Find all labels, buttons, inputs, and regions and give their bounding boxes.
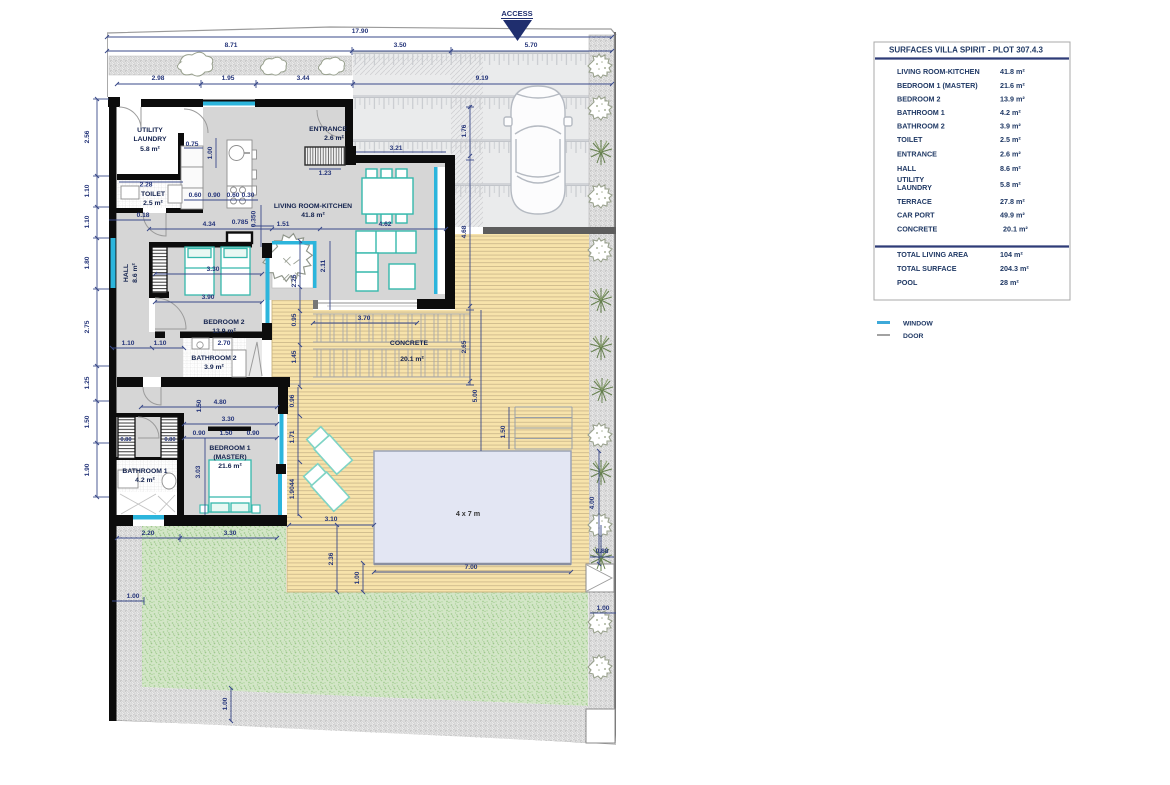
- svg-text:3.21: 3.21: [390, 145, 403, 152]
- svg-text:1.9044: 1.9044: [289, 479, 296, 500]
- svg-text:3.03: 3.03: [195, 465, 202, 478]
- svg-text:0.18: 0.18: [137, 212, 150, 219]
- svg-text:49.9 m²: 49.9 m²: [1000, 211, 1025, 220]
- svg-text:1.80: 1.80: [84, 256, 91, 269]
- svg-text:3.30: 3.30: [224, 530, 237, 537]
- svg-text:1.25: 1.25: [84, 376, 91, 389]
- svg-text:CAR PORT: CAR PORT: [897, 211, 935, 220]
- svg-text:1.00: 1.00: [354, 571, 361, 584]
- svg-text:3.30: 3.30: [207, 266, 220, 273]
- svg-text:1.00: 1.00: [597, 605, 610, 612]
- svg-text:BEDROOM 2: BEDROOM 2: [203, 319, 244, 326]
- svg-text:5.8 m²: 5.8 m²: [140, 146, 160, 153]
- svg-text:LIVING ROOM-KITCHEN: LIVING ROOM-KITCHEN: [274, 203, 352, 210]
- svg-text:7.00: 7.00: [465, 564, 478, 571]
- svg-text:2.98: 2.98: [152, 75, 165, 82]
- svg-text:1.95: 1.95: [222, 75, 235, 82]
- svg-text:4.80: 4.80: [214, 399, 227, 406]
- svg-text:20.1 m²: 20.1 m²: [400, 356, 424, 363]
- svg-text:1.50: 1.50: [220, 430, 233, 437]
- svg-text:3.30: 3.30: [222, 416, 235, 423]
- svg-text:1.50: 1.50: [84, 415, 91, 428]
- svg-text:HALL: HALL: [123, 264, 130, 282]
- svg-text:17.90: 17.90: [352, 28, 369, 35]
- svg-text:3.9 m²: 3.9 m²: [1000, 122, 1021, 131]
- svg-text:0.350: 0.350: [251, 210, 258, 227]
- svg-text:1.45: 1.45: [291, 350, 298, 363]
- svg-text:3.44: 3.44: [297, 75, 310, 82]
- svg-text:2.5 m²: 2.5 m²: [143, 200, 163, 207]
- svg-text:5.00: 5.00: [472, 389, 479, 402]
- svg-text:8.71: 8.71: [225, 42, 238, 49]
- svg-text:TOTAL SURFACE: TOTAL SURFACE: [897, 264, 957, 273]
- svg-text:TOTAL LIVING AREA: TOTAL LIVING AREA: [897, 250, 968, 259]
- svg-text:28 m²: 28 m²: [1000, 278, 1019, 287]
- svg-text:1.71: 1.71: [289, 430, 296, 443]
- svg-text:1.00: 1.00: [127, 593, 140, 600]
- svg-text:DOOR: DOOR: [903, 333, 923, 340]
- svg-text:1.10: 1.10: [154, 340, 167, 347]
- svg-text:TERRACE: TERRACE: [897, 197, 932, 206]
- svg-text:BATHROOM 1: BATHROOM 1: [897, 108, 945, 117]
- svg-text:LIVING ROOM-KITCHEN: LIVING ROOM-KITCHEN: [897, 67, 980, 76]
- svg-text:BATHROOM 2: BATHROOM 2: [897, 122, 945, 131]
- svg-text:13.9 m²: 13.9 m²: [212, 328, 236, 335]
- svg-text:13.9 m²: 13.9 m²: [1000, 95, 1025, 104]
- svg-text:1.10: 1.10: [84, 184, 91, 197]
- svg-text:WINDOW: WINDOW: [903, 321, 933, 328]
- svg-text:1.51: 1.51: [277, 221, 290, 228]
- svg-text:3.90: 3.90: [202, 294, 215, 301]
- svg-text:SURFACES VILLA SPIRIT - PLOT 3: SURFACES VILLA SPIRIT - PLOT 307.4.3: [889, 46, 1044, 55]
- svg-text:0.80: 0.80: [120, 437, 131, 443]
- svg-text:9.19: 9.19: [476, 75, 489, 82]
- svg-text:0.30: 0.30: [242, 192, 255, 199]
- svg-text:1.50: 1.50: [196, 399, 203, 412]
- svg-text:(MASTER): (MASTER): [213, 454, 246, 461]
- svg-text:8.6 m²: 8.6 m²: [1000, 164, 1021, 173]
- svg-text:4.2 m²: 4.2 m²: [1000, 108, 1021, 117]
- svg-text:BEDROOM 1: BEDROOM 1: [209, 445, 250, 452]
- svg-text:1.10: 1.10: [84, 215, 91, 228]
- svg-text:4.00: 4.00: [589, 496, 596, 509]
- svg-text:BEDROOM 2: BEDROOM 2: [897, 95, 941, 104]
- svg-text:0.785: 0.785: [232, 219, 249, 226]
- svg-text:BATHROOM 2: BATHROOM 2: [191, 355, 236, 362]
- svg-text:2.70: 2.70: [218, 340, 231, 347]
- svg-text:TOILET: TOILET: [141, 191, 166, 198]
- svg-text:2.5 m²: 2.5 m²: [1000, 135, 1021, 144]
- svg-text:27.8 m²: 27.8 m²: [1000, 197, 1025, 206]
- svg-text:1.10: 1.10: [122, 340, 135, 347]
- svg-text:0.80: 0.80: [164, 437, 175, 443]
- svg-text:0.60: 0.60: [227, 192, 240, 199]
- svg-text:1.00: 1.00: [222, 697, 229, 710]
- svg-text:TOILET: TOILET: [897, 135, 923, 144]
- svg-text:4 x 7 m: 4 x 7 m: [456, 509, 480, 518]
- svg-text:204.3 m²: 204.3 m²: [1000, 264, 1029, 273]
- svg-text:0.75: 0.75: [186, 141, 199, 148]
- svg-text:1.50: 1.50: [500, 425, 507, 438]
- svg-text:LAUNDRY: LAUNDRY: [897, 183, 932, 192]
- svg-text:4.68: 4.68: [461, 225, 468, 238]
- svg-text:0.95: 0.95: [291, 313, 298, 326]
- svg-text:3.50: 3.50: [394, 42, 407, 49]
- svg-text:UTILITY: UTILITY: [137, 127, 163, 134]
- svg-text:4.34: 4.34: [203, 221, 216, 228]
- svg-text:BATHROOM 1: BATHROOM 1: [122, 468, 167, 475]
- svg-text:2.75: 2.75: [84, 320, 91, 333]
- svg-text:21.6 m²: 21.6 m²: [1000, 81, 1025, 90]
- svg-text:21.6 m²: 21.6 m²: [218, 463, 242, 470]
- svg-text:1.00: 1.00: [207, 146, 214, 159]
- svg-text:0.90: 0.90: [208, 192, 221, 199]
- svg-text:1.90: 1.90: [84, 463, 91, 476]
- svg-text:3.9 m²: 3.9 m²: [204, 364, 224, 371]
- svg-text:0.90: 0.90: [193, 430, 206, 437]
- svg-text:3.70: 3.70: [358, 315, 371, 322]
- svg-text:1.76: 1.76: [461, 124, 468, 137]
- svg-text:2.25: 2.25: [291, 274, 298, 287]
- svg-text:4.2 m²: 4.2 m²: [135, 477, 155, 484]
- svg-text:2.28: 2.28: [140, 182, 153, 189]
- svg-text:LAUNDRY: LAUNDRY: [134, 136, 167, 143]
- svg-text:41.8 m²: 41.8 m²: [1000, 67, 1025, 76]
- svg-text:1.23: 1.23: [319, 170, 332, 177]
- svg-text:0.88: 0.88: [596, 548, 609, 555]
- svg-text:POOL: POOL: [897, 278, 918, 287]
- svg-text:0.60: 0.60: [189, 192, 202, 199]
- svg-text:20.1 m²: 20.1 m²: [1003, 225, 1028, 234]
- svg-text:2.6 m²: 2.6 m²: [1000, 150, 1021, 159]
- svg-text:BEDROOM 1 (MASTER): BEDROOM 1 (MASTER): [897, 81, 978, 90]
- svg-text:ENTRANCE: ENTRANCE: [897, 150, 937, 159]
- svg-text:2.56: 2.56: [84, 130, 91, 143]
- svg-text:2.20: 2.20: [142, 530, 155, 537]
- svg-text:5.8 m²: 5.8 m²: [1000, 180, 1021, 189]
- svg-text:CONCRETE: CONCRETE: [897, 225, 938, 234]
- svg-text:3.10: 3.10: [325, 516, 338, 523]
- svg-text:8.6 m²: 8.6 m²: [132, 262, 139, 282]
- svg-text:0.96: 0.96: [289, 394, 296, 407]
- svg-text:0.90: 0.90: [247, 430, 260, 437]
- svg-text:41.8 m²: 41.8 m²: [301, 212, 325, 219]
- svg-text:5.70: 5.70: [525, 42, 538, 49]
- svg-text:ENTRANCE: ENTRANCE: [309, 126, 347, 133]
- svg-text:4.62: 4.62: [379, 221, 392, 228]
- svg-text:HALL: HALL: [897, 164, 917, 173]
- svg-text:ACCESS: ACCESS: [501, 9, 532, 18]
- svg-text:CONCRETE: CONCRETE: [390, 340, 429, 347]
- svg-text:2.65: 2.65: [461, 340, 468, 353]
- svg-text:104 m²: 104 m²: [1000, 250, 1023, 259]
- svg-text:2.11: 2.11: [320, 259, 327, 272]
- svg-text:2.36: 2.36: [328, 552, 335, 565]
- svg-text:2.6 m²: 2.6 m²: [324, 135, 344, 142]
